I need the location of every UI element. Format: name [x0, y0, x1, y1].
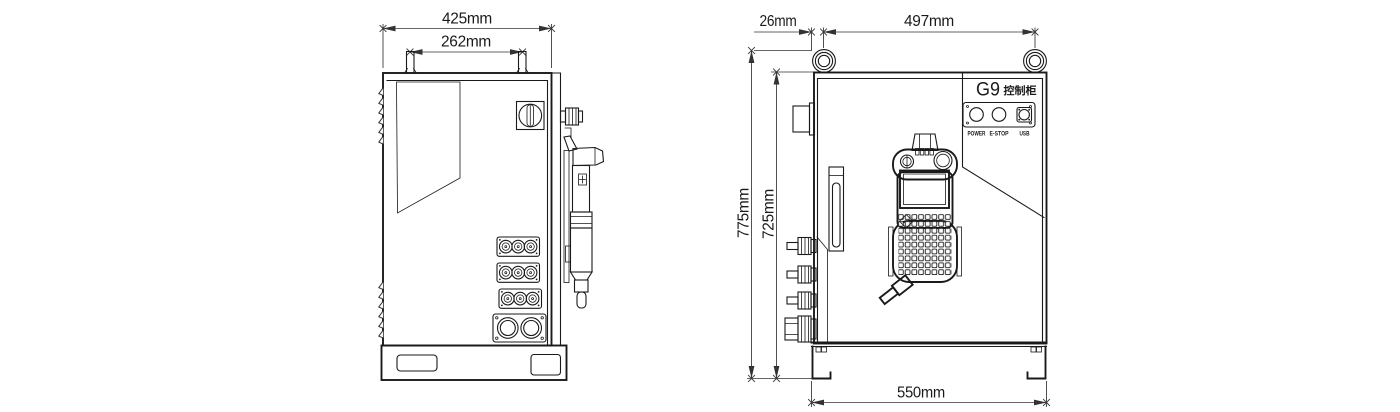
pendant-cable-connector-side [561, 108, 583, 125]
dim-label-775: 775mm [736, 188, 753, 238]
gland-plate-large [493, 314, 546, 342]
dim-front-eyebolt-offset: 26mm [754, 13, 1035, 50]
power-label: POWER [968, 132, 987, 138]
pendant-neck-side [573, 166, 590, 213]
model-type-label: 控制柜 [1004, 84, 1038, 97]
engineering-drawing-canvas: 425mm 262mm [0, 0, 1400, 412]
connector-recess-line [817, 237, 828, 343]
door-handle[interactable] [829, 167, 844, 251]
pendant-taper-side [571, 272, 593, 280]
gland-plate-2 [497, 263, 540, 282]
cabinet-drawing-svg: 425mm 262mm [0, 0, 1400, 412]
model-label: G9 [976, 80, 1000, 101]
dim-label-550: 550mm [897, 385, 945, 402]
pendant-grip-nut-side [566, 246, 571, 262]
pendant-hook [912, 134, 938, 151]
cabinet-body-side [383, 73, 552, 346]
side-connector-1 [787, 238, 816, 255]
dim-side-lug-spacing: 262mm [407, 34, 526, 56]
lifting-lugs-side [405, 52, 529, 74]
power-indicator [970, 108, 984, 122]
dim-label-497: 497mm [904, 13, 954, 30]
base-slot-left [397, 355, 437, 371]
cabinet-base-side [382, 346, 567, 381]
door-face-line-side [552, 73, 561, 346]
gland-plate-1 [497, 237, 540, 256]
cabinet-inner-lines-front [818, 79, 1043, 344]
side-connector-3 [787, 292, 816, 309]
estop-button[interactable] [992, 108, 1006, 122]
pendant-catch-side [573, 148, 604, 166]
rotary-switch-side [517, 102, 545, 130]
estop-label: E-STOP [990, 132, 1009, 138]
side-view: 425mm 262mm [378, 11, 603, 381]
cabinet-base-front [812, 343, 1047, 379]
gland-plate-3 [499, 289, 542, 308]
teach-pendant-front [879, 134, 962, 306]
side-connector-large [785, 316, 816, 342]
control-panel-area: G9 控制柜 POWER E-STOP USB [963, 73, 1045, 218]
base-slot-right [531, 355, 561, 376]
hinge-knuckles-top [378, 88, 383, 146]
control-plate [963, 103, 1035, 128]
pendant-keypad[interactable] [899, 214, 953, 276]
eyebolt-right [1024, 50, 1047, 73]
dim-label-425: 425mm [442, 11, 492, 28]
teach-pendant-profile [561, 108, 604, 308]
pendant-screen [900, 171, 949, 209]
pendant-cable-tip-side [577, 292, 586, 308]
cabinet-inner-lines-side [387, 81, 548, 346]
eyebolt-left [813, 50, 836, 73]
door-panel-outline [397, 82, 461, 213]
front-view: 26mm 497mm 775mm 725mm 550mm [736, 13, 1050, 407]
dim-front-eyebolt-spacing: 497mm [824, 13, 1039, 35]
pendant-grip-ribbed-side [571, 228, 593, 272]
pendant-mount-plate-side [564, 151, 569, 283]
dim-front-body-height: 725mm [761, 69, 817, 382]
rotary-switch-front-profile [793, 103, 815, 135]
pendant-gland-side [575, 280, 589, 292]
hinge-knuckles-bottom [378, 281, 383, 339]
dim-label-26: 26mm [760, 13, 797, 30]
side-connector-2 [787, 266, 816, 283]
usb-label: USB [1020, 132, 1031, 138]
dim-label-725: 725mm [761, 189, 778, 239]
dim-label-262: 262mm [441, 34, 491, 51]
usb-port[interactable] [1017, 108, 1032, 123]
dim-front-base-width: 550mm [808, 381, 1050, 407]
pendant-cable [879, 275, 913, 305]
pendant-mid-block-side [571, 212, 593, 228]
